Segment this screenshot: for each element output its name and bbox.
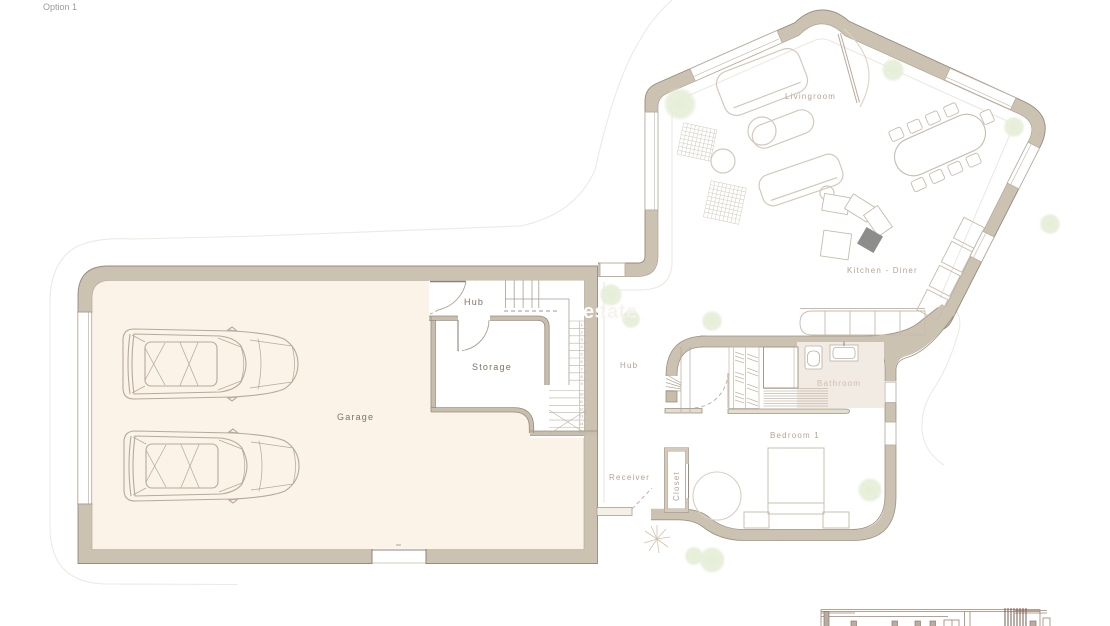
svg-text:14: 14 — [579, 421, 584, 426]
svg-text:Receiver: Receiver — [609, 473, 650, 482]
svg-text:Livingroom: Livingroom — [785, 92, 836, 101]
svg-text:10: 10 — [579, 392, 584, 397]
svg-text:Hub: Hub — [620, 361, 638, 370]
svg-text:Option 1: Option 1 — [43, 2, 77, 12]
svg-text:12: 12 — [579, 406, 584, 411]
svg-text:Storage: Storage — [472, 362, 512, 372]
svg-text:15: 15 — [579, 429, 584, 434]
svg-text:Bedroom 1: Bedroom 1 — [770, 431, 820, 440]
svg-text:13: 13 — [579, 414, 584, 419]
svg-text:Kitchen - Diner: Kitchen - Diner — [847, 266, 918, 275]
svg-text:Closet: Closet — [672, 471, 681, 501]
svg-text:tate: tate — [600, 301, 638, 323]
svg-text:Hub: Hub — [464, 297, 484, 307]
svg-text:Garage: Garage — [337, 412, 374, 422]
svg-text:Bathroom: Bathroom — [817, 379, 861, 388]
